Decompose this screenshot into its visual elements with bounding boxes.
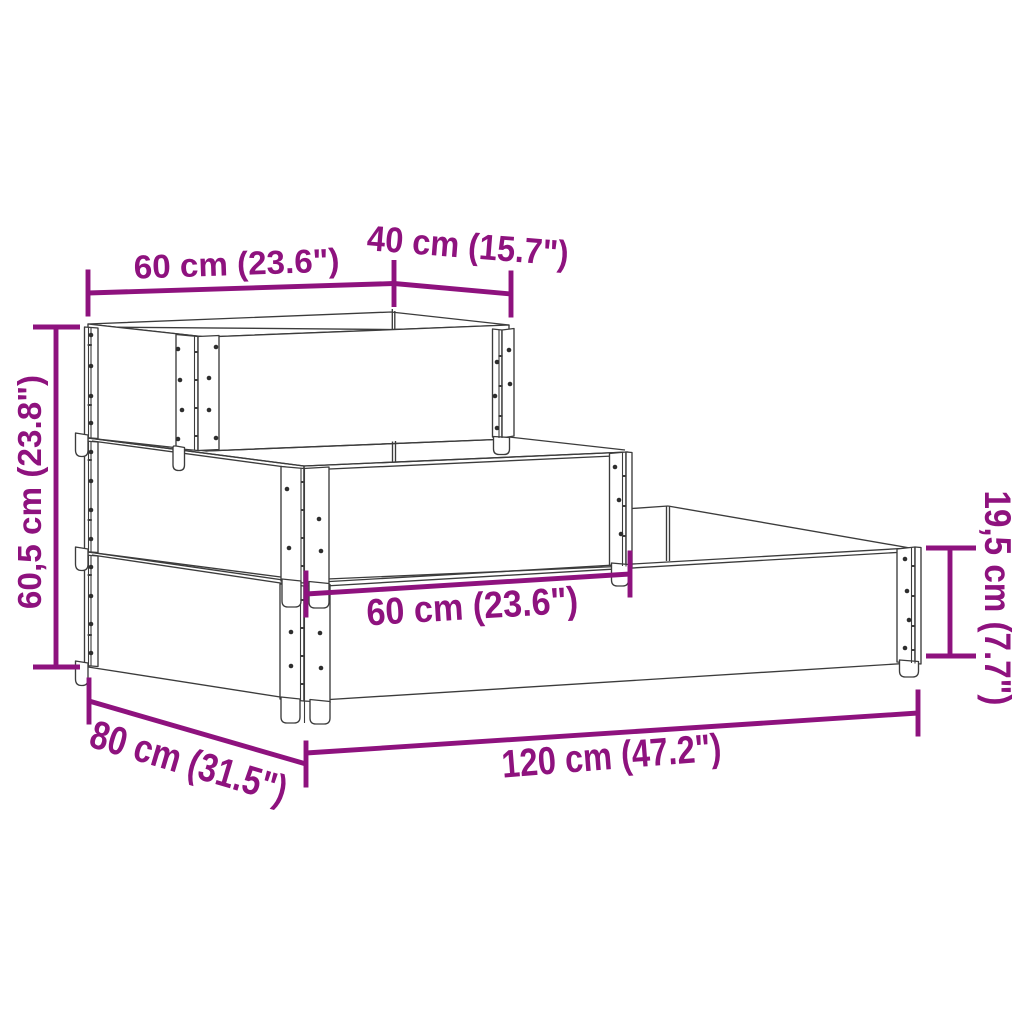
svg-text:19,5 cm (7.7"): 19,5 cm (7.7") bbox=[977, 491, 1018, 706]
svg-text:60,5 cm (23.8"): 60,5 cm (23.8") bbox=[12, 375, 49, 609]
svg-text:60 cm (23.6"): 60 cm (23.6") bbox=[133, 242, 340, 286]
